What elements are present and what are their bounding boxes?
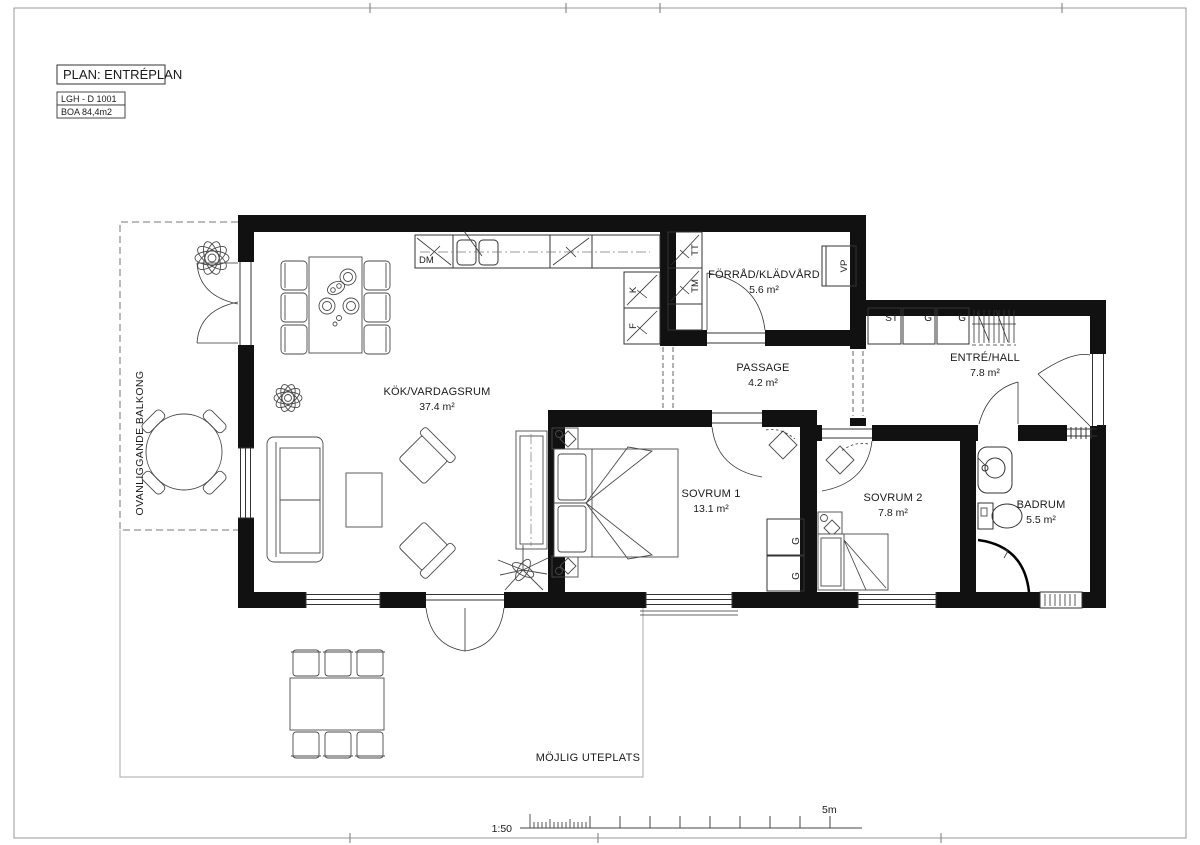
- coat-rack: [972, 310, 1016, 345]
- terrace-doors: [426, 595, 504, 652]
- svg-text:KÖK/VARDAGSRUM: KÖK/VARDAGSRUM: [383, 386, 490, 398]
- bed1-wardrobe-a-label: G: [791, 537, 802, 545]
- cooktop: [553, 238, 589, 265]
- plant-corner: [194, 240, 230, 277]
- scale-bar: 1:50 5m: [492, 804, 862, 835]
- bathroom-window: [1040, 592, 1082, 608]
- room-label-passage: PASSAGE 4.2 m²: [736, 362, 789, 389]
- room-label-bedroom2: SOVRUM 2 7.8 m²: [863, 492, 922, 519]
- double-bed: [554, 447, 678, 559]
- daybed: [516, 431, 547, 549]
- scale-major-ticks: [590, 816, 830, 828]
- armchair-1: [396, 426, 457, 487]
- svg-text:FÖRRÅD/KLÄDVÅRD: FÖRRÅD/KLÄDVÅRD: [708, 268, 820, 281]
- bathroom-fixtures: [978, 447, 1029, 592]
- single-bed: [818, 534, 888, 590]
- svg-text:5.5 m²: 5.5 m²: [1026, 514, 1056, 526]
- floor-plan-drawing: PLAN: ENTRÉPLAN LGH - D 1001 BOA 84,4m2: [0, 0, 1200, 845]
- bathroom-door: [979, 382, 1018, 424]
- washbasin: [978, 447, 1012, 493]
- plant-floor: [498, 545, 548, 590]
- plant-living: [273, 383, 303, 413]
- shower-rail: [978, 540, 1029, 592]
- heatpump-label: VP: [839, 260, 850, 273]
- terrace-table-set: [290, 650, 385, 758]
- svg-text:7.8 m²: 7.8 m²: [970, 367, 1000, 379]
- svg-text:BADRUM: BADRUM: [1017, 499, 1066, 511]
- hall-wardrobe1-label: G: [924, 313, 932, 324]
- svg-text:5.6 m²: 5.6 m²: [749, 284, 779, 296]
- bedroom2-furniture: [818, 512, 888, 590]
- balcony-doors: [197, 262, 251, 345]
- dryer-label: TT: [690, 244, 701, 256]
- bedroom2-door: [822, 429, 872, 491]
- room-label-hall: ENTRÉ/HALL 7.8 m²: [950, 351, 1020, 379]
- title-block: PLAN: ENTRÉPLAN LGH - D 1001 BOA 84,4m2: [57, 65, 182, 118]
- hall-wardrobe2-label: G: [958, 313, 966, 324]
- coffee-table: [346, 473, 382, 527]
- svg-text:13.1 m²: 13.1 m²: [693, 503, 729, 515]
- terrace-label: MÖJLIG UTEPLATS: [536, 752, 641, 764]
- room-label-bathroom: BADRUM 5.5 m²: [1017, 499, 1066, 526]
- room-label-kitchen-living: KÖK/VARDAGSRUM 37.4 m²: [383, 386, 490, 413]
- washer-label: TM: [690, 279, 701, 293]
- boa-area: BOA 84,4m2: [61, 107, 112, 117]
- balcony-label: OVANLIGGANDE BALKONG: [134, 371, 146, 516]
- cleaning-cab-label: ST: [885, 313, 898, 324]
- svg-text:7.8 m²: 7.8 m²: [878, 507, 908, 519]
- svg-text:4.2 m²: 4.2 m²: [748, 377, 778, 389]
- scale-ratio-label: 1:50: [492, 823, 513, 835]
- fridge-label: K: [628, 286, 639, 293]
- kitchen-sink: [457, 231, 498, 265]
- fridge-freezer: K F: [624, 272, 660, 344]
- kitchen-counter: DM K F: [415, 231, 660, 344]
- svg-text:SOVRUM 2: SOVRUM 2: [863, 492, 922, 504]
- dishwasher-label: DM: [419, 255, 434, 266]
- svg-text:SOVRUM 1: SOVRUM 1: [681, 488, 740, 500]
- apartment-id: LGH - D 1001: [61, 94, 117, 104]
- svg-text:PASSAGE: PASSAGE: [736, 362, 789, 374]
- scale-fine-ticks: [530, 814, 586, 828]
- bedroom1-wardrobes: G G: [767, 519, 804, 591]
- freezer-label: F: [628, 323, 639, 329]
- scale-length-label: 5m: [822, 804, 837, 816]
- svg-text:ENTRÉ/HALL: ENTRÉ/HALL: [950, 351, 1020, 364]
- entry-door: [1038, 354, 1104, 426]
- svg-text:37.4 m²: 37.4 m²: [419, 401, 455, 413]
- room-label-bedroom1: SOVRUM 1 13.1 m²: [681, 488, 740, 515]
- toilet: [978, 503, 1022, 529]
- room-label-storage: FÖRRÅD/KLÄDVÅRD 5.6 m²: [708, 268, 820, 296]
- floor-plan-sheet: PLAN: ENTRÉPLAN LGH - D 1001 BOA 84,4m2: [0, 0, 1200, 845]
- bed1-wardrobe-b-label: G: [791, 572, 802, 580]
- sofa: [267, 437, 323, 562]
- armchair-2: [396, 519, 457, 580]
- dining-set: [281, 257, 390, 354]
- plan-title: PLAN: ENTRÉPLAN: [63, 67, 182, 82]
- bedroom1-furniture: G G: [552, 428, 804, 591]
- balcony-table-set: [140, 408, 227, 495]
